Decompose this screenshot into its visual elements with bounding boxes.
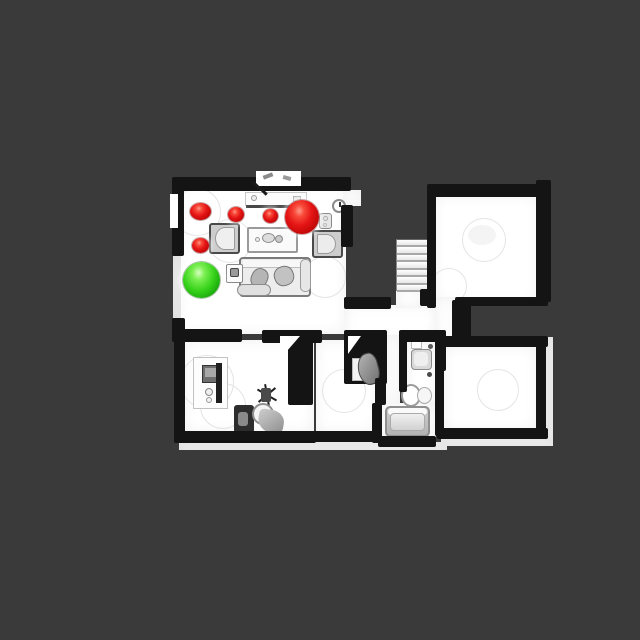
desk-edge [216,363,222,403]
stair-step [397,270,428,277]
wall-bottomright-left [435,336,444,436]
top-right-room-floor [434,195,538,303]
speaker-grill [323,216,328,221]
staircase [396,239,428,291]
outer-strip-bottom-right [441,439,553,446]
wall-office-divider-stem [288,341,313,405]
armchair-left-seat [215,227,235,250]
sofa-back [243,260,307,268]
wall-livingroom-bottom [174,329,242,342]
round-rug-outline [477,369,519,411]
floorplan-canvas [0,0,640,640]
wall-gap-sliver [386,335,400,407]
coffee-table-item [262,233,275,243]
bath-item-dot [427,372,432,377]
side-table-item [230,268,239,277]
wall-bottomright-bottom [437,428,548,439]
red-sphere-marker[interactable] [192,238,209,253]
bath-item-dot [428,344,433,349]
wall-office-left [174,333,185,443]
sofa-armrest [237,284,271,296]
stair-step [397,277,428,284]
sink-basin [414,352,428,366]
armchair-right-seat [317,234,336,254]
green-sphere-marker[interactable] [183,262,220,298]
wall-bathroom-left [399,335,407,392]
left-window-overlay [170,194,178,228]
stair-step [397,247,428,254]
left-open-edge [173,256,181,318]
desk-chair-cushion [238,412,248,426]
wall-midroom-right-lower [375,378,386,405]
toilet-tank [417,387,432,404]
plant-pot [261,388,271,402]
bathtub-basin [390,413,425,431]
stair-step [397,240,428,247]
red-sphere-marker[interactable] [190,203,211,220]
wall-void-lip [344,297,391,309]
wall-topright-left [427,184,436,308]
floor-shading [468,225,496,245]
coffee-table-item [255,237,260,242]
wall-topright-right [536,180,551,302]
outer-strip-right [546,337,553,441]
desk-item [205,388,213,396]
coffee-table-item [275,235,283,243]
bottom-right-room-floor [443,346,537,430]
wall-tub-bottom [378,436,436,447]
wall-topright-top [428,184,550,197]
red-sphere-marker[interactable] [228,207,244,222]
console-item [251,195,257,201]
stair-step [397,255,428,262]
stair-step [397,262,428,269]
wall-office-bottom [174,431,316,443]
red-sphere-marker[interactable] [263,209,278,223]
red-sphere-marker[interactable] [285,200,319,234]
wall-bottomright-top [437,336,548,347]
desk-item [206,397,212,403]
sofa-armrest [300,259,311,292]
wall-bottomright-right [536,338,546,434]
speaker-grill [323,223,327,227]
wall-livingroom-right [341,205,353,247]
